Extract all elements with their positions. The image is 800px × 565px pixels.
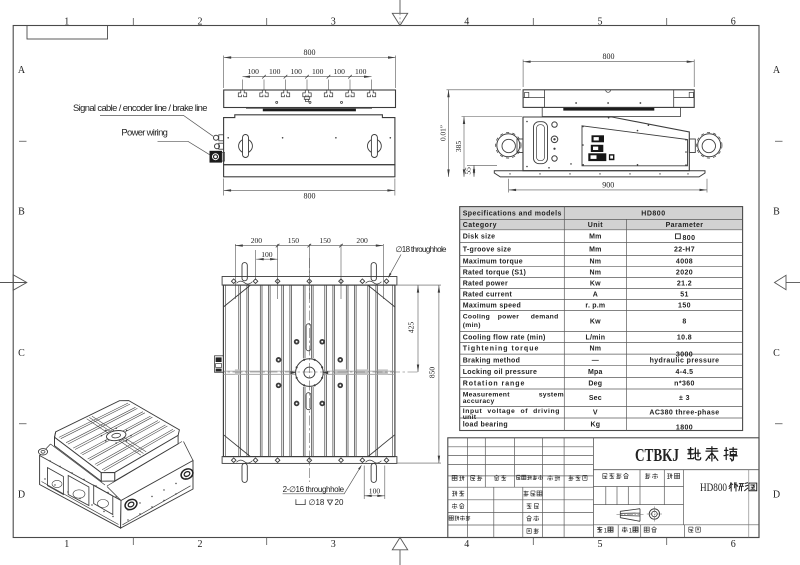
svg-text:B: B — [18, 207, 25, 218]
svg-text:5: 5 — [598, 539, 603, 550]
svg-text:850: 850 — [427, 367, 436, 379]
svg-text:2020: 2020 — [676, 270, 693, 277]
svg-text:150: 150 — [319, 236, 331, 245]
svg-text:Maximum torque: Maximum torque — [463, 258, 523, 265]
svg-text:800: 800 — [304, 48, 316, 57]
svg-text:1: 1 — [64, 539, 69, 550]
svg-text:100: 100 — [269, 67, 281, 76]
svg-text:150: 150 — [288, 236, 300, 245]
svg-text:100: 100 — [248, 67, 260, 76]
svg-text:D: D — [773, 489, 780, 500]
svg-text:8: 8 — [682, 318, 686, 325]
svg-text:Power wiring: Power wiring — [121, 127, 167, 138]
svg-text:3000: 3000 — [676, 352, 693, 359]
svg-text:Rotation range: Rotation range — [463, 381, 525, 388]
svg-text:V: V — [593, 410, 598, 417]
svg-text:800: 800 — [683, 235, 696, 242]
svg-text:Deg: Deg — [588, 381, 602, 388]
svg-text:n*360: n*360 — [674, 381, 695, 388]
svg-text:CTBKJ: CTBKJ — [635, 445, 679, 465]
svg-text:2: 2 — [198, 17, 203, 28]
svg-text:HD800: HD800 — [641, 210, 665, 217]
svg-text:Nm: Nm — [590, 258, 602, 265]
svg-text:Rated torque (S1): Rated torque (S1) — [463, 270, 526, 277]
svg-text:C: C — [18, 348, 25, 359]
svg-text:r. p.m: r. p.m — [585, 302, 605, 309]
svg-text:100: 100 — [291, 67, 303, 76]
svg-text:51: 51 — [680, 291, 689, 298]
svg-text:Braking method: Braking method — [463, 357, 520, 364]
svg-text:100: 100 — [355, 67, 367, 76]
svg-text:21.2: 21.2 — [677, 280, 692, 287]
svg-text:power: power — [498, 314, 520, 321]
svg-text:Category: Category — [463, 222, 497, 229]
svg-text:Mm: Mm — [589, 246, 601, 253]
svg-text:Nm: Nm — [590, 346, 602, 353]
svg-text:AC380 three-phase: AC380 three-phase — [649, 410, 719, 417]
svg-text:6: 6 — [731, 17, 736, 28]
svg-text:load bearing: load bearing — [463, 422, 508, 429]
svg-text:1800: 1800 — [676, 425, 693, 432]
svg-text:—: — — [592, 357, 599, 364]
svg-text:Parameter: Parameter — [666, 222, 704, 229]
svg-text:Kw: Kw — [590, 280, 601, 287]
svg-text:55: 55 — [464, 167, 473, 175]
svg-text:900: 900 — [602, 181, 614, 190]
svg-text:4: 4 — [464, 17, 469, 28]
svg-text:(min): (min) — [463, 322, 481, 329]
svg-text:Tightening torque: Tightening torque — [463, 346, 539, 353]
svg-text:4: 4 — [464, 539, 469, 550]
svg-text:Rated current: Rated current — [463, 291, 513, 298]
svg-text:800: 800 — [304, 192, 316, 201]
svg-text:4008: 4008 — [676, 258, 693, 265]
svg-text:unit: unit — [463, 414, 477, 421]
svg-text:A: A — [773, 65, 781, 76]
svg-text:800: 800 — [603, 52, 615, 61]
svg-text:22-H7: 22-H7 — [674, 246, 695, 253]
svg-text:10.8: 10.8 — [677, 334, 692, 341]
svg-text:100: 100 — [334, 67, 346, 76]
svg-text:Signal cable / encoder line /: Signal cable / encoder line / brake line — [73, 102, 208, 113]
svg-text:∅18 throughhole: ∅18 throughhole — [396, 245, 448, 254]
svg-text:Nm: Nm — [590, 270, 602, 277]
svg-text:± 3: ± 3 — [679, 395, 690, 402]
svg-text:3: 3 — [331, 539, 336, 550]
svg-text:Mm: Mm — [589, 234, 601, 241]
svg-text:20: 20 — [335, 498, 344, 507]
svg-text:Unit: Unit — [588, 222, 603, 229]
svg-text:HD800: HD800 — [700, 480, 727, 494]
svg-text:Rated power: Rated power — [463, 280, 508, 287]
svg-text:Specifications and models: Specifications and models — [463, 210, 562, 217]
svg-text:6: 6 — [731, 539, 736, 550]
svg-text:Mpa: Mpa — [588, 369, 603, 376]
svg-text:Disk size: Disk size — [463, 234, 496, 241]
svg-text:3: 3 — [331, 17, 336, 28]
svg-text:Maximum speed: Maximum speed — [463, 302, 521, 309]
svg-text:200: 200 — [251, 236, 263, 245]
svg-text:T-groove size: T-groove size — [463, 246, 512, 253]
svg-text:∅18: ∅18 — [309, 498, 325, 507]
svg-text:B: B — [773, 207, 780, 218]
svg-text:Input voltage of driving: Input voltage of driving — [463, 408, 560, 415]
svg-text:Cooling: Cooling — [463, 314, 490, 321]
svg-text:demand: demand — [531, 314, 559, 321]
svg-text:Kw: Kw — [590, 318, 601, 325]
svg-text:5: 5 — [598, 17, 603, 28]
svg-text:Kg: Kg — [590, 422, 600, 429]
svg-text:2: 2 — [198, 539, 203, 550]
svg-text:D: D — [18, 489, 25, 500]
svg-text:A: A — [593, 291, 598, 298]
svg-text:2-∅16 throughhole: 2-∅16 throughhole — [283, 485, 345, 494]
svg-text:0.01”: 0.01” — [438, 125, 447, 141]
svg-text:425: 425 — [407, 322, 416, 334]
svg-text:C: C — [773, 348, 780, 359]
svg-text:system: system — [539, 391, 564, 398]
svg-text:100: 100 — [261, 250, 273, 259]
svg-text:200: 200 — [356, 236, 368, 245]
svg-text:1: 1 — [64, 17, 69, 28]
svg-text:Locking oil pressure: Locking oil pressure — [463, 369, 537, 376]
svg-text:L/min: L/min — [586, 334, 606, 341]
svg-text:accuracy: accuracy — [463, 398, 495, 405]
svg-text:4-4.5: 4-4.5 — [676, 369, 694, 376]
svg-text:100: 100 — [312, 67, 324, 76]
svg-text:A: A — [18, 65, 26, 76]
svg-text:Cooling flow rate (min): Cooling flow rate (min) — [463, 334, 546, 341]
svg-text:150: 150 — [678, 302, 691, 309]
svg-text:Sec: Sec — [589, 395, 602, 402]
svg-text:385: 385 — [454, 141, 463, 153]
svg-text:100: 100 — [369, 486, 381, 495]
